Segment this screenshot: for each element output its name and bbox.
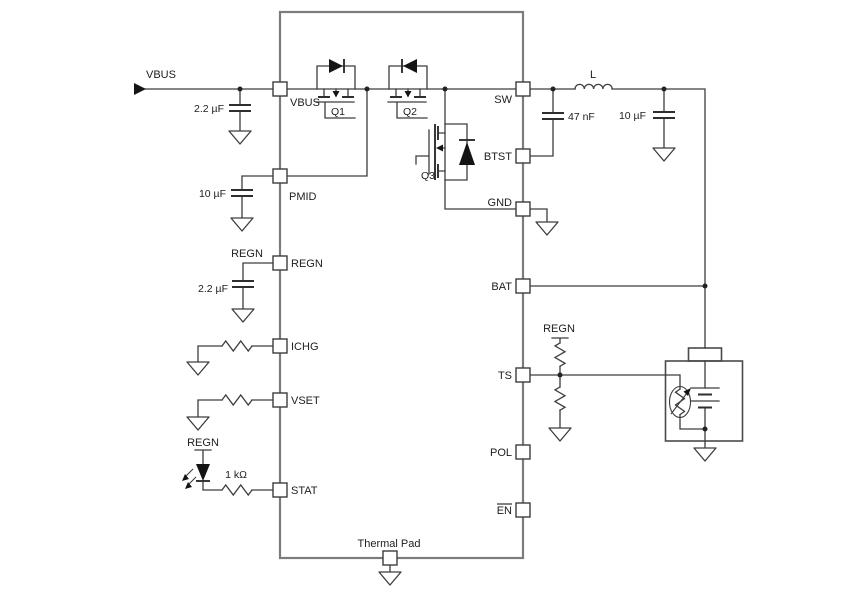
net-label-vbus: VBUS (146, 69, 176, 81)
pin-label-sw: SW (494, 94, 512, 106)
pin-label-pol: POL (490, 447, 512, 459)
resistor-ichg (222, 341, 252, 351)
capacitor-vbus (229, 105, 251, 111)
pin-regn (273, 256, 287, 270)
pin-label-stat: STAT (291, 485, 318, 497)
net-label-regn-ts: REGN (543, 323, 575, 335)
pin-label-ts: TS (498, 370, 512, 382)
net-label-regn-cap: REGN (231, 248, 263, 260)
value-c-regn: 2.2 µF (198, 283, 228, 295)
pin-label-vset: VSET (291, 395, 320, 407)
pin-label-ichg: ICHG (291, 341, 319, 353)
pin-label-btst: BTST (484, 151, 512, 163)
label-q3: Q3 (421, 170, 435, 182)
capacitor-regn (232, 281, 254, 287)
value-c-pmid: 10 µF (199, 188, 226, 200)
label-q1: Q1 (331, 106, 345, 118)
pin-label-bat: BAT (491, 281, 512, 293)
vbus-input-arrow-icon (134, 83, 146, 95)
pin-btst (516, 149, 530, 163)
battery-connector (689, 348, 722, 361)
led-icon (182, 450, 211, 489)
schematic-canvas: VBUS VBUS PMID REGN ICHG VSET STAT SW BT… (0, 0, 862, 592)
resistor-ts-pullup (555, 343, 565, 366)
value-r-stat: 1 kΩ (225, 469, 247, 481)
pin-label-regn: REGN (291, 258, 323, 270)
pin-pol (516, 445, 530, 459)
pin-label-vbus: VBUS (290, 97, 320, 109)
pin-vbus (273, 82, 287, 96)
label-q2: Q2 (403, 106, 417, 118)
ground-icons (187, 131, 716, 585)
net-label-regn-led: REGN (187, 437, 219, 449)
pin-label-thermal-pad: Thermal Pad (358, 538, 421, 550)
pin-en (516, 503, 530, 517)
body-diode-q2-icon (403, 59, 417, 73)
pin-label-pmid: PMID (289, 191, 317, 203)
body-diode-q1-icon (329, 59, 343, 73)
pin-vset (273, 393, 287, 407)
labels: VBUS VBUS PMID REGN ICHG VSET STAT SW BT… (146, 69, 646, 550)
pin-stat (273, 483, 287, 497)
pin-label-gnd: GND (488, 197, 513, 209)
inductor-icon (575, 84, 612, 89)
capacitor-output (653, 112, 675, 118)
ic-outline (280, 12, 523, 558)
body-diode-q3-icon (459, 142, 475, 165)
label-inductor: L (590, 69, 596, 81)
capacitor-btst (542, 113, 564, 119)
pin-thermal-pad (383, 551, 397, 565)
value-c-vbus: 2.2 µF (194, 103, 224, 115)
pin-pmid (273, 169, 287, 183)
battery-icon (691, 388, 719, 408)
pin-gnd (516, 202, 530, 216)
wires (140, 89, 705, 572)
resistor-stat (222, 485, 252, 495)
resistor-vset (222, 395, 252, 405)
schematic-svg: VBUS VBUS PMID REGN ICHG VSET STAT SW BT… (0, 0, 862, 592)
pin-ts (516, 368, 530, 382)
value-c-out: 10 µF (619, 110, 646, 122)
capacitor-pmid (231, 190, 253, 196)
pin-bat (516, 279, 530, 293)
value-c-btst: 47 nF (568, 111, 595, 123)
pin-sw (516, 82, 530, 96)
thermistor-icon (670, 387, 692, 418)
pin-label-en: EN (497, 505, 512, 517)
pin-ichg (273, 339, 287, 353)
resistor-ts-pulldown (555, 387, 565, 410)
